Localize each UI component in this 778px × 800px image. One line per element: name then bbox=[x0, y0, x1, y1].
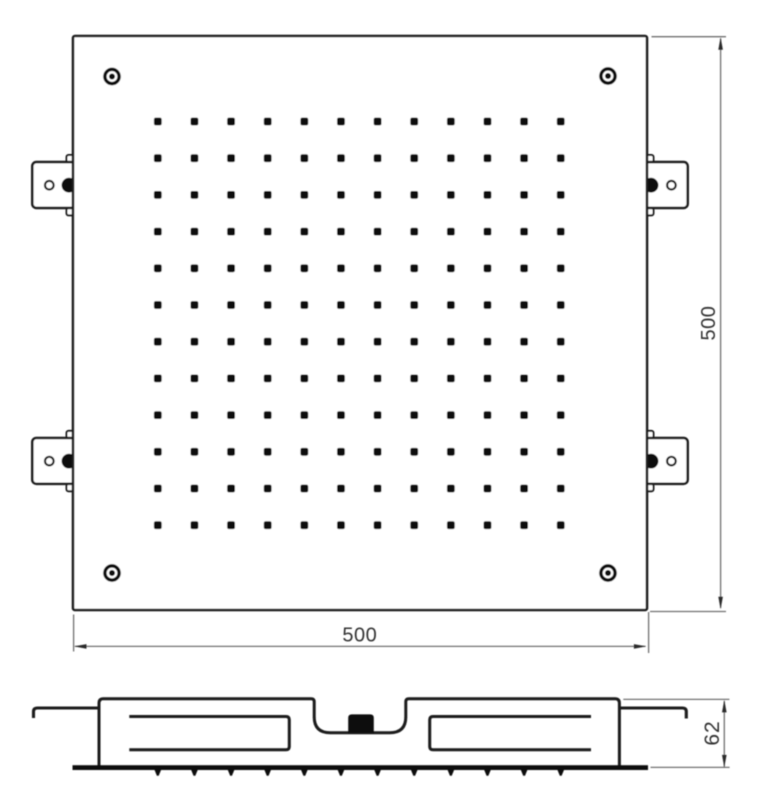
svg-text:62: 62 bbox=[701, 720, 724, 745]
svg-text:500: 500 bbox=[698, 306, 720, 341]
svg-text:500: 500 bbox=[342, 625, 377, 647]
